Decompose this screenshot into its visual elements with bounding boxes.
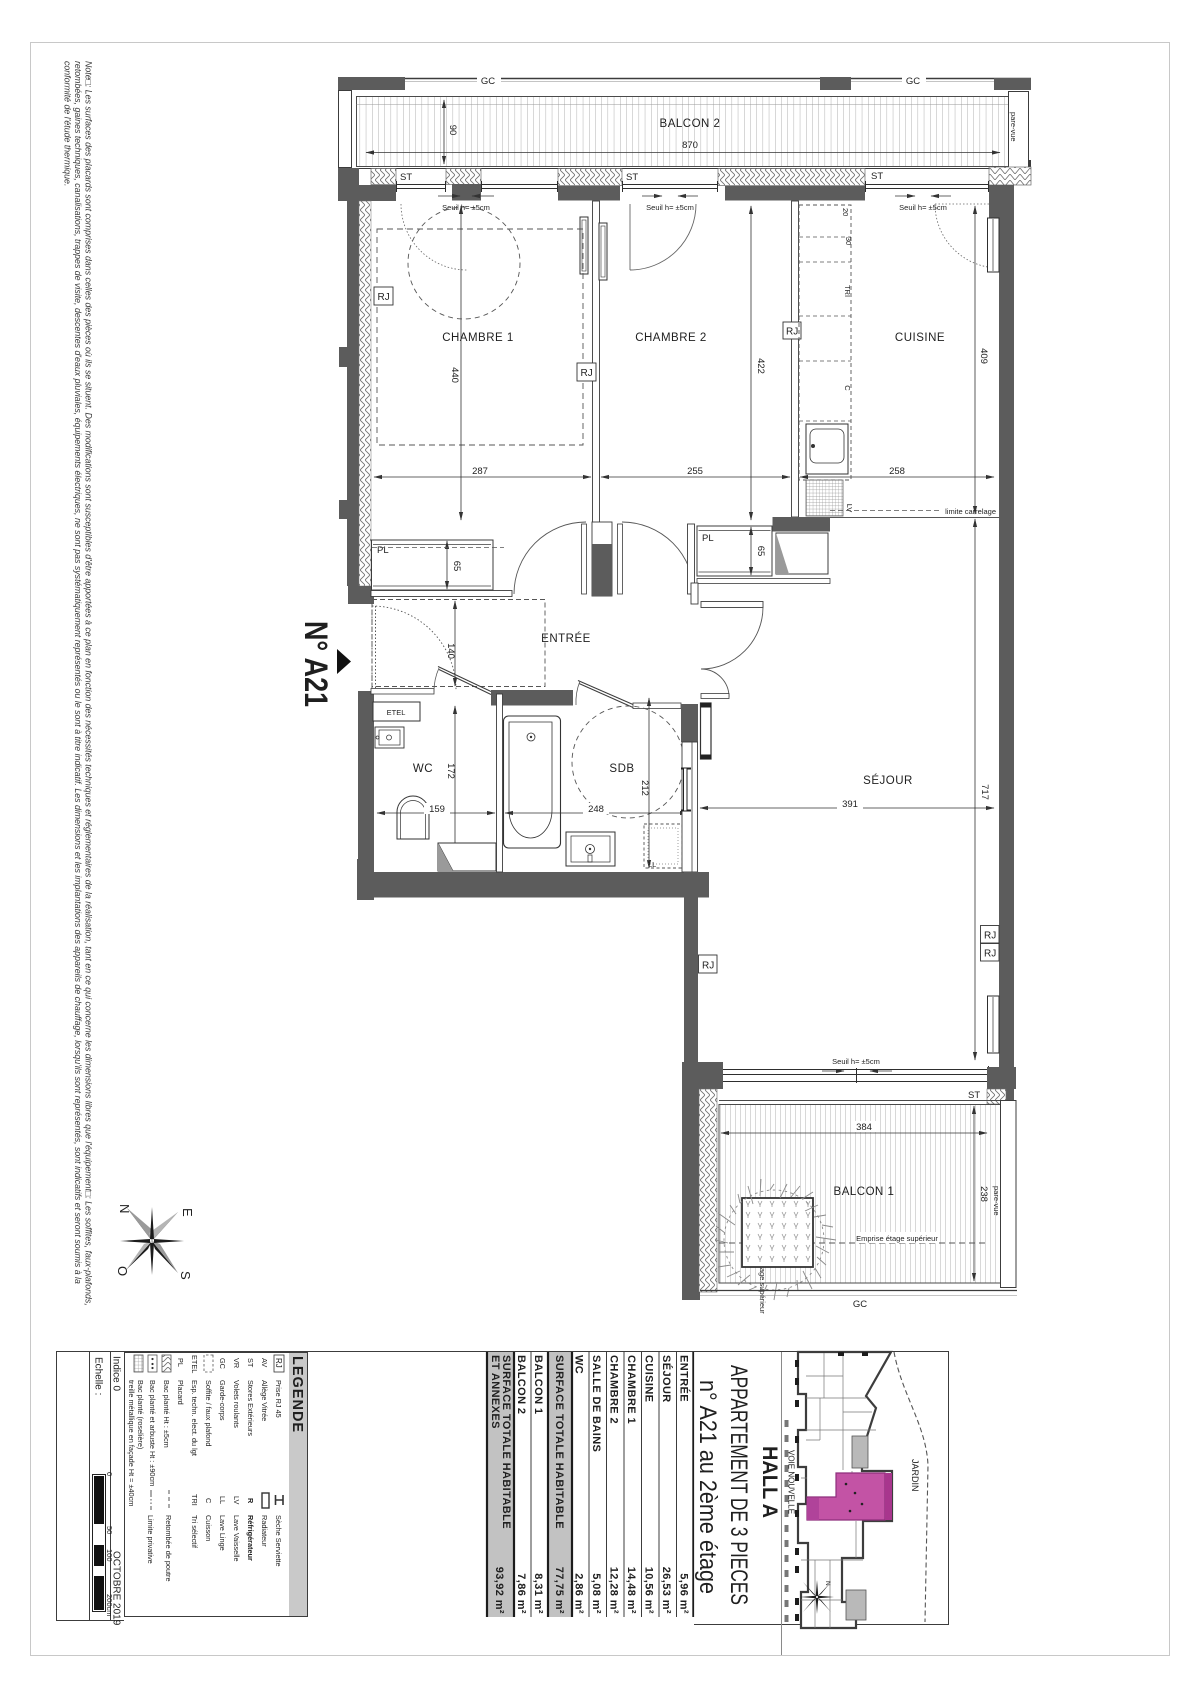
svg-text:SALLE DE BAINS: SALLE DE BAINS xyxy=(590,1355,602,1452)
svg-text:5,96 m²: 5,96 m² xyxy=(678,1573,690,1614)
svg-text:BALCON 1: BALCON 1 xyxy=(834,1186,895,1198)
svg-text:C: C xyxy=(204,1498,213,1503)
svg-text:E: E xyxy=(180,1208,195,1217)
svg-text:Garde-corps: Garde-corps xyxy=(218,1380,227,1421)
svg-text:CHAMBRE 2: CHAMBRE 2 xyxy=(635,332,707,344)
svg-text:2,86 m²: 2,86 m² xyxy=(573,1573,585,1614)
svg-text:90: 90 xyxy=(447,125,458,136)
svg-text:Seuil h= ±5cm: Seuil h= ±5cm xyxy=(832,1057,880,1066)
svg-text:CUISINE: CUISINE xyxy=(895,332,945,344)
svg-text:N: N xyxy=(824,1581,831,1586)
svg-text:26,53 m²: 26,53 m² xyxy=(660,1567,672,1614)
svg-text:ST: ST xyxy=(968,1090,980,1101)
svg-text:LV: LV xyxy=(845,504,854,513)
svg-text:Limite privative: Limite privative xyxy=(146,1515,155,1564)
svg-text:Seuil h= ±5cm: Seuil h= ±5cm xyxy=(646,203,694,212)
svg-text:Echelle :: Echelle : xyxy=(93,1357,104,1395)
svg-text:Esp. techn. elect. du lgt: Esp. techn. elect. du lgt xyxy=(190,1380,199,1456)
svg-text:ST: ST xyxy=(626,172,638,183)
svg-text:140: 140 xyxy=(445,643,456,659)
svg-text:409: 409 xyxy=(978,348,989,364)
svg-text:AV: AV xyxy=(260,1358,269,1367)
svg-text:Bac planté et arbuste Ht : ±90: Bac planté et arbuste Ht : ±90cm xyxy=(148,1380,157,1486)
svg-text:12,28 m²: 12,28 m² xyxy=(608,1567,620,1614)
svg-text:LV: LV xyxy=(232,1496,241,1505)
svg-text:SÉJOUR: SÉJOUR xyxy=(660,1355,673,1403)
svg-text:TRI: TRI xyxy=(843,285,852,297)
svg-text:ETEL: ETEL xyxy=(387,708,406,717)
svg-text:Prise RJ 45: Prise RJ 45 xyxy=(274,1380,283,1418)
svg-text:ETEL: ETEL xyxy=(190,1355,199,1373)
svg-text:Allège Vitrée: Allège Vitrée xyxy=(260,1380,269,1421)
svg-text:pare-vue: pare-vue xyxy=(1009,112,1018,142)
svg-text:287: 287 xyxy=(472,466,488,477)
svg-text:SDB: SDB xyxy=(609,763,634,775)
svg-text:Lave Vaisselle: Lave Vaisselle xyxy=(232,1515,241,1562)
svg-text:R: R xyxy=(246,1498,255,1504)
svg-text:LEGENDE: LEGENDE xyxy=(289,1356,305,1433)
svg-text:PL: PL xyxy=(702,533,714,544)
svg-text:treille métallique en façade H: treille métallique en façade Ht = ±40cm xyxy=(127,1380,136,1506)
svg-text:Bac planté (roselière): Bac planté (roselière) xyxy=(136,1380,145,1449)
svg-text:conformité de l'étude thermiqu: conformité de l'étude thermique. xyxy=(63,61,73,186)
svg-text:5,08 m²: 5,08 m² xyxy=(590,1573,602,1614)
svg-text:ST: ST xyxy=(871,171,883,182)
svg-text:Cuisson: Cuisson xyxy=(204,1515,213,1541)
svg-text:ET ANNEXES: ET ANNEXES xyxy=(489,1355,501,1429)
svg-text:RJ: RJ xyxy=(581,368,593,379)
svg-text:Emprise étage supérieur: Emprise étage supérieur xyxy=(856,1234,938,1243)
svg-text:limite carrelage: limite carrelage xyxy=(945,507,996,516)
svg-text:870: 870 xyxy=(682,140,698,151)
svg-text:CHAMBRE 1: CHAMBRE 1 xyxy=(442,332,514,344)
svg-text:PL: PL xyxy=(377,545,389,556)
svg-text:Placard: Placard xyxy=(176,1380,185,1405)
svg-text:258: 258 xyxy=(889,466,905,477)
svg-text:172: 172 xyxy=(445,763,456,779)
svg-text:50: 50 xyxy=(105,1526,114,1534)
svg-text:PL: PL xyxy=(176,1358,185,1367)
svg-text:RJ: RJ xyxy=(274,1358,283,1368)
svg-text:255: 255 xyxy=(687,466,703,477)
svg-text:Réfrigérateur: Réfrigérateur xyxy=(246,1515,255,1561)
svg-text:TRI: TRI xyxy=(190,1494,199,1506)
svg-text:Sèche Serviette: Sèche Serviette xyxy=(274,1515,283,1567)
svg-text:RJ: RJ xyxy=(984,931,996,942)
svg-text:WC: WC xyxy=(413,763,433,775)
svg-text:Soffite / faux plafond: Soffite / faux plafond xyxy=(204,1380,213,1446)
svg-text:N: N xyxy=(117,1204,132,1213)
svg-text:SÉJOUR: SÉJOUR xyxy=(863,774,913,787)
svg-text:20: 20 xyxy=(841,208,850,216)
svg-text:Radiateur: Radiateur xyxy=(260,1515,269,1547)
svg-text:RJ: RJ xyxy=(786,327,798,338)
svg-text:238: 238 xyxy=(978,1186,989,1202)
svg-text:pare-vue: pare-vue xyxy=(992,1186,1001,1216)
svg-text:93,92 m²: 93,92 m² xyxy=(493,1567,505,1614)
svg-text:Retombée de poutre: Retombée de poutre xyxy=(164,1515,173,1582)
svg-text:n° A21 au 2ème étage: n° A21 au 2ème étage xyxy=(694,1380,721,1594)
svg-text:212: 212 xyxy=(639,780,650,796)
svg-text:JARDIN: JARDIN xyxy=(910,1459,920,1492)
svg-text:retombées, gaines techniques,: retombées, gaines techniques, canalisati… xyxy=(73,61,83,1284)
svg-text:OCTOBRE 2019: OCTOBRE 2019 xyxy=(111,1551,122,1626)
svg-text:ENTRÉE: ENTRÉE xyxy=(678,1355,691,1402)
svg-text:248: 248 xyxy=(588,804,604,815)
svg-text:391: 391 xyxy=(842,799,858,810)
svg-text:30: 30 xyxy=(844,237,853,245)
svg-text:65: 65 xyxy=(451,561,462,572)
svg-text:RJ: RJ xyxy=(984,949,996,960)
svg-text:GC: GC xyxy=(218,1358,227,1369)
svg-text:ST: ST xyxy=(400,172,412,183)
svg-text:WC: WC xyxy=(573,1355,585,1374)
svg-text:GC: GC xyxy=(906,76,920,87)
svg-text:8,31 m²: 8,31 m² xyxy=(532,1573,544,1614)
svg-text:ST: ST xyxy=(246,1358,255,1368)
svg-text:77,75 m²: 77,75 m² xyxy=(553,1567,565,1614)
svg-text:GC: GC xyxy=(481,76,495,87)
svg-text:CHAMBRE 1: CHAMBRE 1 xyxy=(625,1355,637,1424)
svg-text:Tri sélectif: Tri sélectif xyxy=(190,1515,199,1549)
svg-text:S: S xyxy=(178,1271,193,1280)
svg-text:7,86 m²: 7,86 m² xyxy=(515,1573,527,1614)
svg-text:Volets roulants: Volets roulants xyxy=(232,1380,241,1428)
svg-text:159: 159 xyxy=(429,804,445,815)
svg-text:GC: GC xyxy=(853,1299,867,1310)
svg-text:BALCON 2: BALCON 2 xyxy=(515,1355,527,1414)
svg-text:RJ: RJ xyxy=(378,292,390,303)
svg-text:O: O xyxy=(115,1266,130,1276)
svg-text:C: C xyxy=(843,385,852,391)
svg-text:RJ: RJ xyxy=(702,961,714,972)
svg-text:717: 717 xyxy=(979,784,990,800)
svg-text:LL: LL xyxy=(218,1496,227,1504)
svg-text:CUISINE: CUISINE xyxy=(643,1355,655,1402)
svg-text:N° A21: N° A21 xyxy=(298,621,334,707)
svg-text:Bac planté Ht : ±5cm: Bac planté Ht : ±5cm xyxy=(162,1380,171,1448)
svg-text:Stores Extérieurs: Stores Extérieurs xyxy=(246,1380,255,1436)
svg-text:384: 384 xyxy=(856,1122,872,1133)
svg-text:422: 422 xyxy=(755,358,766,374)
svg-text:VR: VR xyxy=(232,1358,241,1368)
svg-text:14,48 m²: 14,48 m² xyxy=(625,1567,637,1614)
svg-text:10,56 m²: 10,56 m² xyxy=(643,1567,655,1614)
svg-text:SURFACE TOTALE HABITABLE: SURFACE TOTALE HABITABLE xyxy=(553,1355,565,1529)
svg-text:Lave Linge: Lave Linge xyxy=(218,1515,227,1551)
svg-text:CHAMBRE 2: CHAMBRE 2 xyxy=(608,1355,620,1424)
svg-text:HALL A: HALL A xyxy=(758,1446,781,1518)
svg-text:LL: LL xyxy=(648,860,656,869)
svg-text:65: 65 xyxy=(755,546,766,557)
svg-text:BALCON 1: BALCON 1 xyxy=(532,1355,544,1414)
svg-text:ENTRÉE: ENTRÉE xyxy=(541,632,591,645)
svg-text:0: 0 xyxy=(105,1472,114,1476)
svg-text:Indice 0: Indice 0 xyxy=(111,1356,122,1391)
svg-text:440: 440 xyxy=(449,367,460,383)
svg-text:VOIE NOUVELLE: VOIE NOUVELLE xyxy=(787,1450,796,1514)
svg-text:BALCON 2: BALCON 2 xyxy=(660,118,721,130)
svg-text:Note□: Les surfaces des placar: Note□: Les surfaces des placards sont co… xyxy=(84,61,94,1306)
svg-text:APPARTEMENT DE 3 PIECES: APPARTEMENT DE 3 PIECES xyxy=(725,1365,752,1605)
